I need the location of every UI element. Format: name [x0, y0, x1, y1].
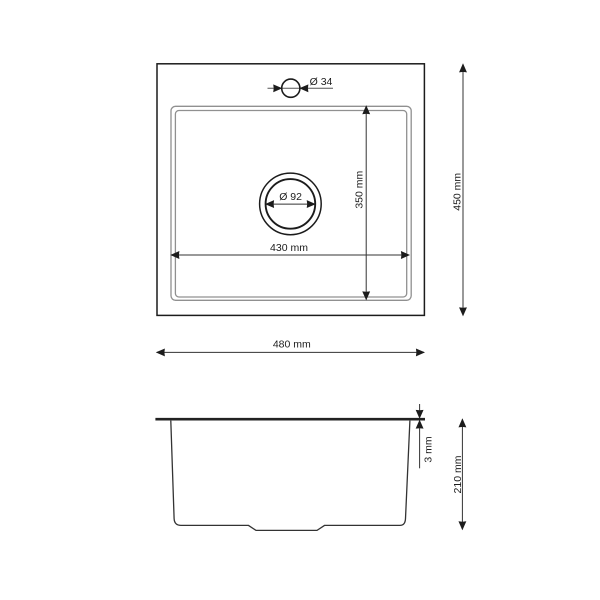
svg-text:3 mm: 3 mm	[422, 436, 434, 463]
svg-text:Ø 34: Ø 34	[310, 76, 333, 88]
svg-text:430 mm: 430 mm	[270, 242, 308, 254]
svg-text:480 mm: 480 mm	[273, 338, 311, 350]
svg-text:210 mm: 210 mm	[452, 455, 464, 493]
svg-text:350 mm: 350 mm	[353, 170, 365, 208]
svg-text:Ø 92: Ø 92	[279, 191, 302, 203]
svg-text:450 mm: 450 mm	[451, 173, 463, 211]
